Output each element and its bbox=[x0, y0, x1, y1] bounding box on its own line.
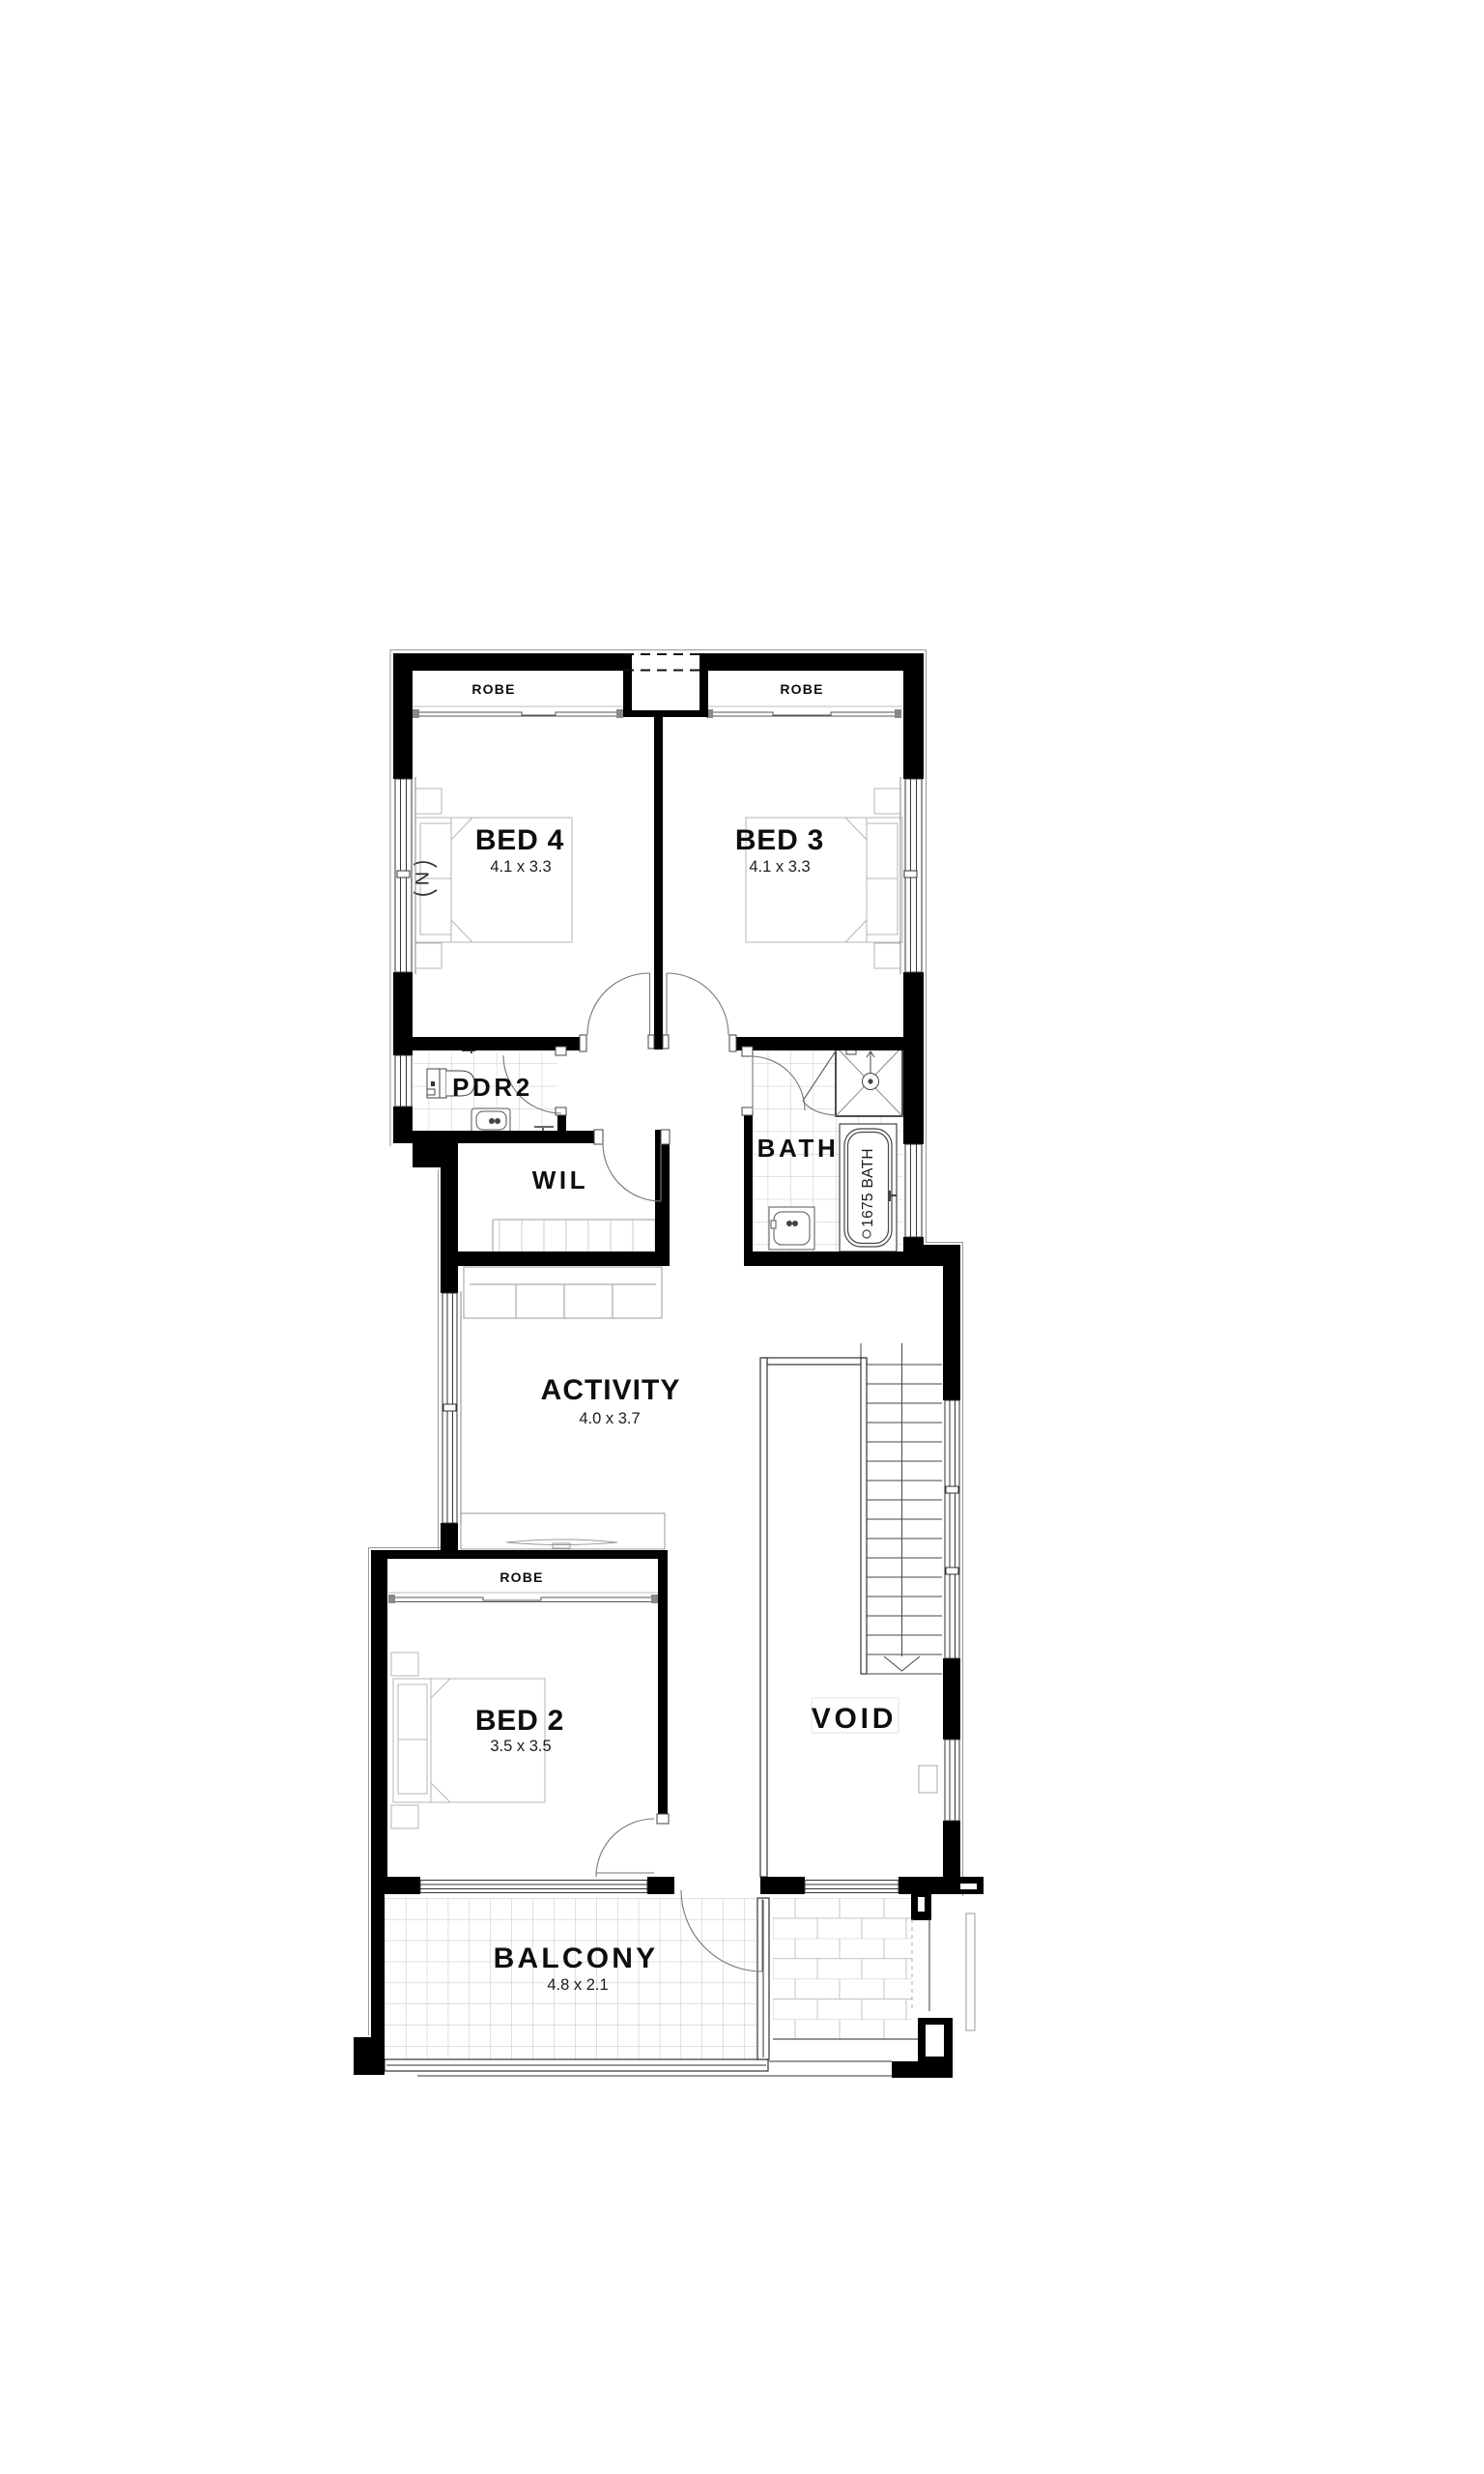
svg-text:BATH: BATH bbox=[757, 1134, 840, 1163]
svg-text:ROBE: ROBE bbox=[471, 681, 515, 697]
svg-text:1675 BATH: 1675 BATH bbox=[860, 1148, 876, 1227]
svg-text:ROBE: ROBE bbox=[499, 1569, 543, 1585]
svg-text:WIL: WIL bbox=[532, 1165, 588, 1194]
svg-text:PDR2: PDR2 bbox=[452, 1073, 533, 1102]
svg-text:BED 2: BED 2 bbox=[475, 1705, 564, 1737]
svg-text:BED 4: BED 4 bbox=[475, 824, 564, 856]
svg-text:VOID: VOID bbox=[812, 1703, 898, 1735]
svg-text:BALCONY: BALCONY bbox=[494, 1942, 659, 1974]
svg-text:ACTIVITY: ACTIVITY bbox=[541, 1374, 681, 1406]
svg-text:3.5 x 3.5: 3.5 x 3.5 bbox=[490, 1738, 551, 1755]
svg-text:4.1 x 3.3: 4.1 x 3.3 bbox=[490, 858, 551, 876]
svg-text:4.0 x 3.7: 4.0 x 3.7 bbox=[579, 1410, 640, 1427]
svg-text:BED 3: BED 3 bbox=[735, 824, 824, 856]
svg-text:ROBE: ROBE bbox=[780, 681, 823, 697]
svg-text:4.1 x 3.3: 4.1 x 3.3 bbox=[749, 858, 810, 876]
svg-text:4.8 x 2.1: 4.8 x 2.1 bbox=[547, 1976, 608, 1994]
